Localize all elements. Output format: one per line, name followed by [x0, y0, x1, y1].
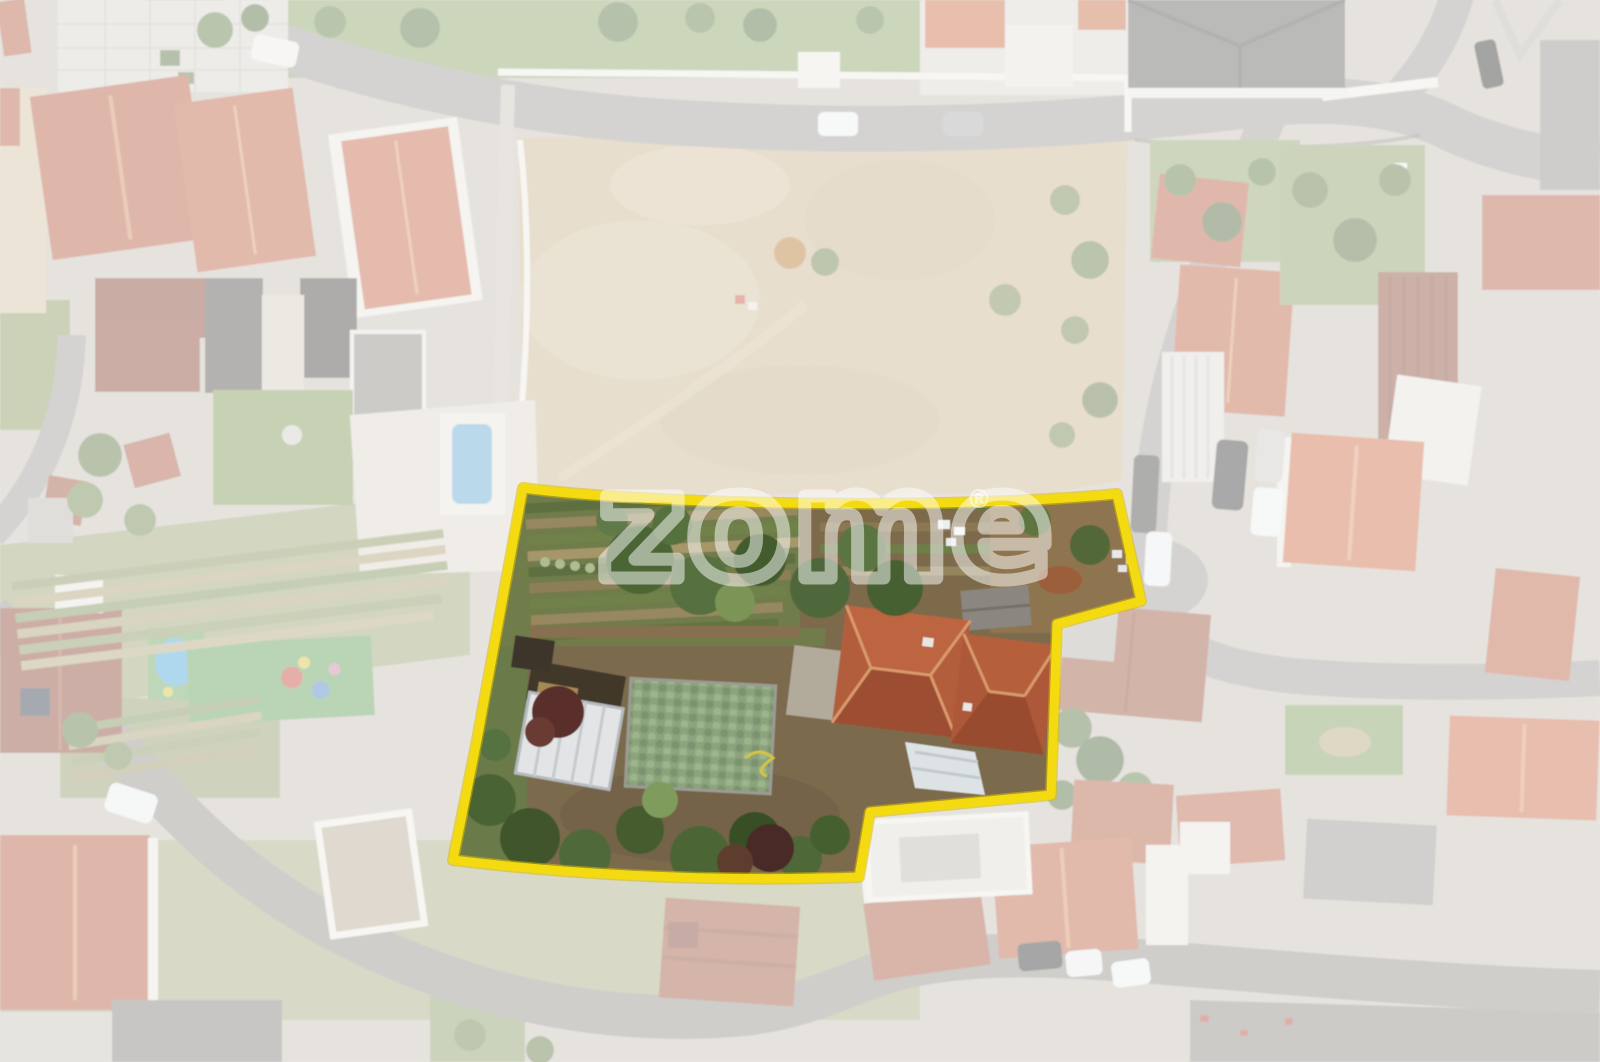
- registered-mark: ®: [966, 485, 992, 515]
- watermark-text: zome: [598, 440, 1054, 614]
- cabbage-patch: [625, 678, 775, 793]
- watermark: zome ®: [598, 440, 1054, 614]
- aerial-photo: zome ®: [0, 0, 1600, 1062]
- svg-text:zome: zome: [598, 440, 1054, 614]
